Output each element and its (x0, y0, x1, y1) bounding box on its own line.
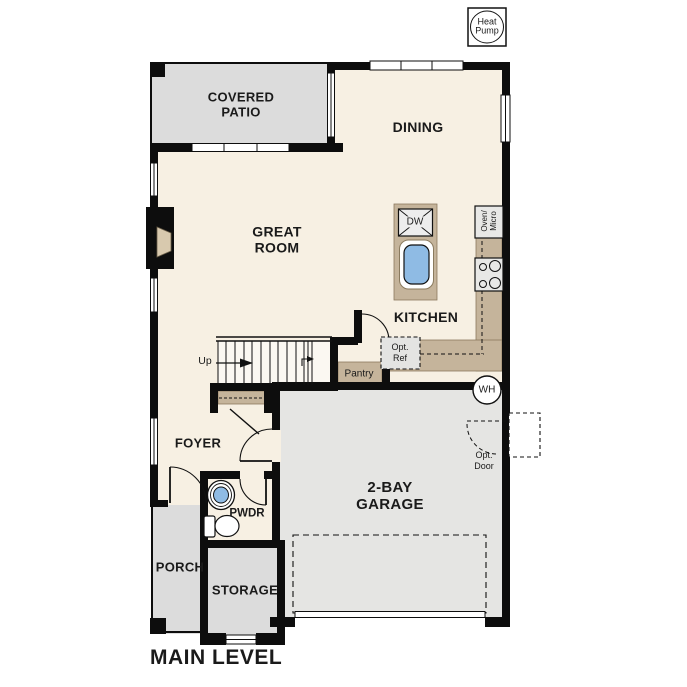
storage-text: STORAGE (212, 583, 278, 598)
label-storage: STORAGE (212, 584, 278, 599)
label-covered-patio: COVERED PATIO (208, 90, 274, 119)
garage-line2: GARAGE (356, 497, 424, 514)
opt-ref-line1: Opt. (391, 342, 408, 353)
dishwasher-text: DW (405, 216, 426, 227)
covered-patio-line2: PATIO (208, 105, 274, 120)
label-great-room: GREAT ROOM (252, 224, 301, 255)
optional-refrigerator-label: Opt. Ref (391, 342, 408, 364)
opt-ref-line2: Ref (391, 353, 408, 364)
label-garage: 2-BAY GARAGE (356, 480, 424, 514)
oven-micro-line1: Oven/ (480, 210, 489, 231)
stairs-up-label: Up (198, 356, 211, 368)
oven-micro-label: Oven/ Micro (480, 210, 498, 231)
wall-pantry-jamb (354, 310, 362, 343)
slider-door-patio (192, 144, 289, 152)
wall-pantry-top (330, 337, 358, 345)
wall-stairs-bottom (210, 383, 338, 391)
label-foyer: FOYER (175, 437, 221, 452)
powder-sink-bowl (214, 487, 229, 503)
label-pantry: Pantry (345, 368, 374, 379)
opt-door-line1: Opt. (474, 450, 494, 461)
optional-door-landing (509, 413, 540, 457)
oven-micro-line2: Micro (489, 210, 498, 231)
wall-foyer-garage (272, 390, 280, 548)
water-heater-label: WH (479, 384, 496, 395)
label-powder: PWDR (229, 508, 264, 521)
powder-text: PWDR (229, 508, 264, 520)
kitchen-text: KITCHEN (394, 309, 458, 325)
porch-edge-left (151, 505, 153, 634)
patio-edge-top (151, 62, 335, 64)
wall-storage-bottom-right (256, 633, 285, 645)
toilet-tank (204, 516, 215, 537)
wall-powder-bottom (200, 540, 285, 548)
heat-pump-label: Heat Pump (475, 18, 499, 37)
island-sink (404, 245, 429, 284)
covered-patio-line1: COVERED (208, 90, 274, 105)
plan-title: MAIN LEVEL (150, 646, 282, 670)
garage-door-opening (271, 430, 281, 462)
dining-text: DINING (393, 119, 444, 135)
wall-closet-right (264, 391, 272, 413)
label-kitchen: KITCHEN (394, 310, 458, 326)
wall-powder-top-right (264, 471, 280, 479)
wall-garage-bottom-left (270, 617, 295, 627)
label-dining: DINING (393, 120, 444, 136)
main-level-text: MAIN LEVEL (150, 646, 282, 669)
floor-plan: Heat Pump COVERED PATIO DINING GREAT ROO… (0, 0, 687, 687)
great-room-line2: ROOM (252, 240, 301, 256)
opt-door-line2: Door (474, 461, 494, 472)
optional-door-label: Opt. Door (474, 450, 494, 473)
up-text: Up (198, 355, 211, 367)
wall-right (502, 62, 510, 627)
porch-text: PORCH (156, 560, 204, 575)
floor-plan-drawing (0, 0, 687, 687)
wall-closet-left (210, 391, 218, 413)
heat-pump-line2: Pump (475, 27, 499, 36)
patio-post (150, 62, 165, 77)
porch-post (150, 618, 166, 634)
garage-door (295, 612, 485, 618)
wall-garage-bottom-right (485, 617, 510, 627)
great-room-line1: GREAT (252, 224, 301, 240)
pantry-text: Pantry (345, 368, 374, 379)
cooktop-box (475, 258, 503, 291)
garage-line1: 2-BAY (356, 480, 424, 497)
foyer-text: FOYER (175, 436, 221, 451)
wall-storage-bottom-left (200, 633, 226, 645)
wh-text: WH (479, 384, 496, 395)
wall-powder-storage-left (200, 471, 208, 633)
patio-edge-left (150, 62, 152, 143)
window-dining-top (370, 61, 463, 70)
dishwasher-label: DW (405, 216, 426, 227)
label-porch: PORCH (156, 561, 204, 576)
